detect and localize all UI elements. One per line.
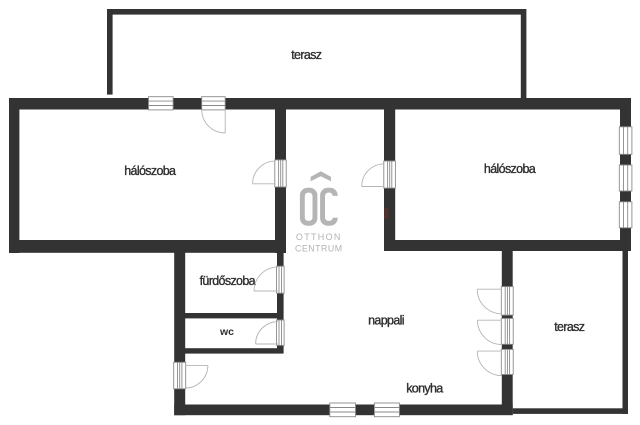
svg-text:terasz: terasz (291, 48, 322, 62)
svg-text:hálószoba: hálószoba (484, 162, 536, 176)
svg-text:terasz: terasz (554, 320, 585, 334)
svg-text:hálószoba: hálószoba (124, 164, 176, 178)
svg-text:OTTHON: OTTHON (296, 232, 342, 242)
svg-text:fürdőszoba: fürdőszoba (200, 274, 256, 288)
svg-text:wc: wc (219, 326, 234, 338)
svg-text:CENTRUM: CENTRUM (295, 243, 342, 253)
svg-text:konyha: konyha (406, 382, 443, 396)
svg-text:nappali: nappali (368, 314, 404, 328)
